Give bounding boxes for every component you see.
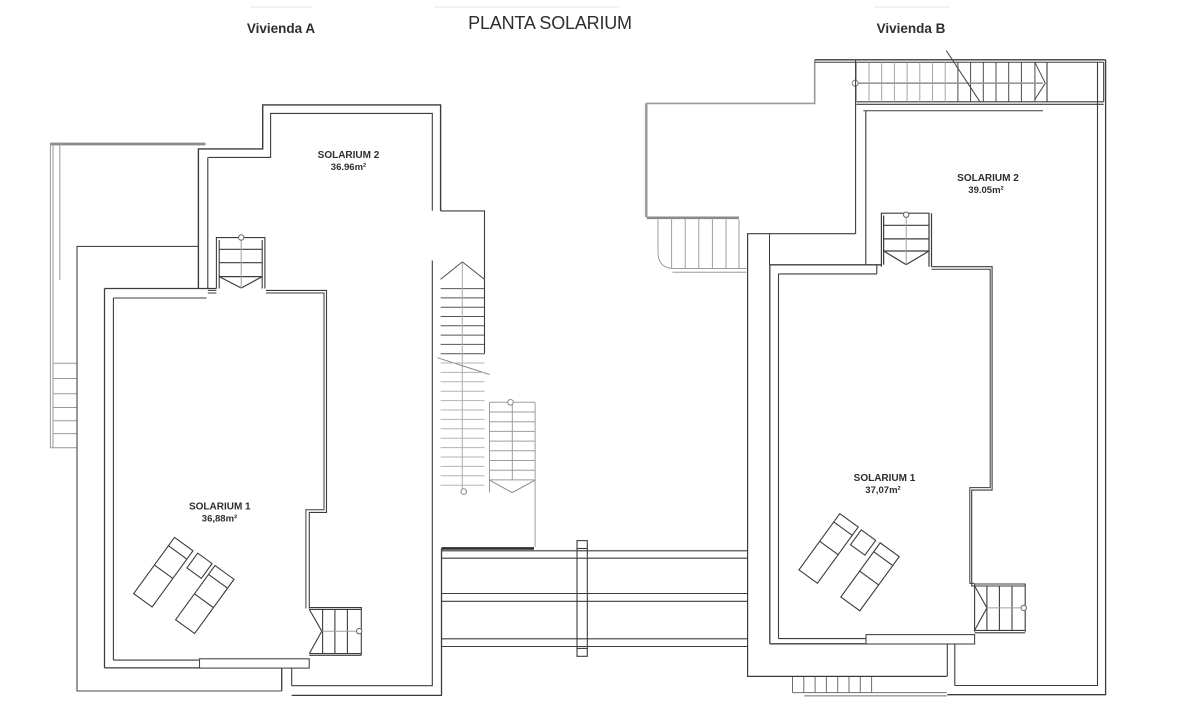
svg-text:SOLARIUM 2: SOLARIUM 2 bbox=[957, 173, 1019, 184]
svg-text:SOLARIUM 1: SOLARIUM 1 bbox=[189, 502, 251, 513]
svg-text:36.96m²: 36.96m² bbox=[331, 162, 366, 173]
svg-text:Vivienda A: Vivienda A bbox=[247, 21, 316, 36]
svg-text:37,07m²: 37,07m² bbox=[865, 485, 900, 496]
svg-text:Vivienda B: Vivienda B bbox=[877, 21, 946, 36]
svg-text:36,88m²: 36,88m² bbox=[202, 514, 237, 525]
svg-text:SOLARIUM 1: SOLARIUM 1 bbox=[854, 473, 916, 484]
svg-text:SOLARIUM 2: SOLARIUM 2 bbox=[318, 150, 380, 161]
svg-text:39.05m²: 39.05m² bbox=[968, 185, 1003, 196]
svg-text:PLANTA SOLARIUM: PLANTA SOLARIUM bbox=[468, 13, 632, 33]
